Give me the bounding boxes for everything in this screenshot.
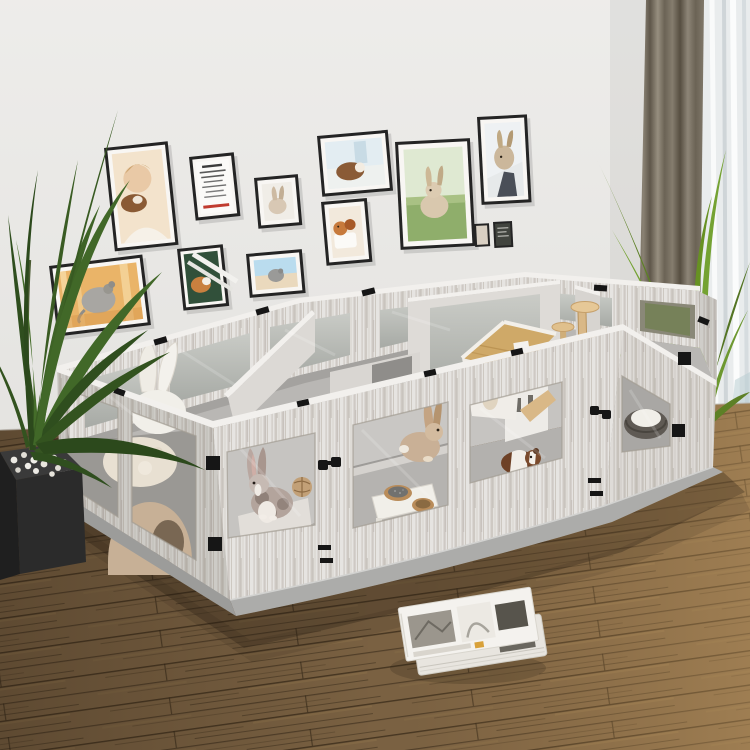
panel-lock — [594, 285, 607, 292]
frame-mini-dark — [493, 221, 513, 248]
frame-guinea-pig-window — [317, 130, 396, 201]
latch-bar — [588, 478, 601, 483]
frame-text-poster — [189, 152, 244, 225]
corner-lock — [678, 352, 691, 365]
planter-front — [16, 468, 86, 574]
frame-white-rabbit — [254, 174, 306, 233]
corner-lock — [672, 424, 685, 437]
frame-chinchilla-beach — [246, 249, 309, 302]
latch-bar — [320, 558, 333, 563]
magazine-page — [457, 602, 496, 643]
cat-tree-top-disc — [571, 302, 599, 313]
corner-lock — [208, 537, 222, 551]
frame-rabbit-held — [477, 114, 535, 209]
corner-lock — [206, 456, 220, 470]
photo-hamsters — [329, 206, 365, 259]
magazine-photo — [495, 600, 529, 630]
frame-mini-beige — [474, 223, 490, 247]
latch-bar — [590, 491, 603, 496]
magazine-photo — [407, 610, 455, 648]
rabbit-head — [425, 423, 443, 441]
sheer-highlight — [733, 0, 737, 424]
rabbit-tail — [399, 445, 409, 453]
cat-tree-disc — [552, 323, 574, 332]
frame-hamsters-cup — [321, 198, 376, 270]
frame-child-guinea-pig — [104, 141, 182, 255]
living-room-photo — [0, 0, 750, 750]
food-pellets — [388, 487, 408, 498]
scene-canvas — [0, 0, 750, 750]
latch-bar — [318, 545, 331, 550]
frame-bunny-grass — [395, 138, 479, 254]
